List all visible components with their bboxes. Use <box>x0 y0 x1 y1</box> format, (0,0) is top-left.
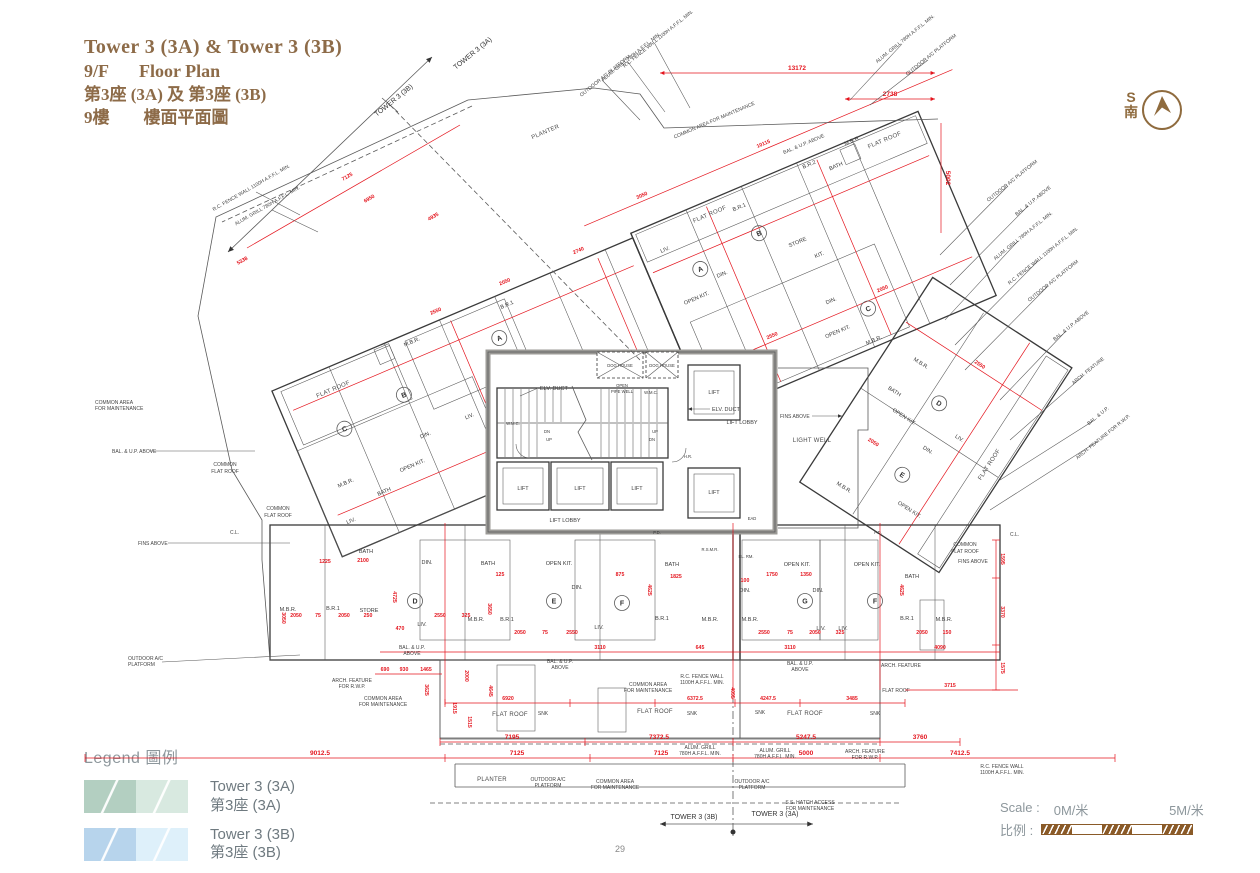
dim-label: 2050 <box>290 613 302 619</box>
dim-label: 7372.5 <box>649 734 669 741</box>
dim-label: 125 <box>496 572 505 578</box>
lift-label: LIFT <box>708 490 720 496</box>
core-label: OPEN <box>616 383 628 388</box>
room-label: OPEN KIT. <box>399 458 426 474</box>
annotation-label: FOR R.W.P. <box>339 684 366 690</box>
unit-circle: E <box>547 594 562 609</box>
room-label: BATH <box>905 574 919 580</box>
room-label: OPEN KIT. <box>546 561 573 567</box>
dim-label: 645 <box>696 645 705 651</box>
stair-direction: DN <box>649 437 655 442</box>
dim-label: 3760 <box>913 734 928 741</box>
dim-label: 3050 <box>280 612 286 624</box>
annotation-label: SNK <box>755 710 766 716</box>
dim-label: 75 <box>787 630 793 636</box>
dim-label: 2050 <box>916 630 928 636</box>
dim-label: 2050 <box>499 277 512 287</box>
dim-label: 2000 <box>463 670 469 682</box>
unit-circle: C <box>335 419 355 439</box>
dim-label: 3110 <box>784 645 795 651</box>
svg-text:DOG HOUSE: DOG HOUSE <box>649 363 675 368</box>
room-label: LIV. <box>660 245 671 254</box>
room-label: OPEN KIT. <box>854 562 881 568</box>
floor-plan: C B A A B C FLAT ROOF M.B.R. B.R.1 M.B.R… <box>0 0 1260 855</box>
room-label: M.B.R. <box>835 481 853 495</box>
dim-label: 3370 <box>999 606 1005 618</box>
annotation-label: ABOVE <box>791 667 809 673</box>
dim-label: 3110 <box>594 645 605 651</box>
annotation-label: 780H A.F.F.L. MIN. <box>679 751 721 757</box>
room-label: BATH <box>886 386 901 399</box>
area-label: FLAT ROOF <box>787 711 823 717</box>
annotation-label: PLATFORM <box>128 662 155 668</box>
tower-split-label-3a: TOWER 3 (3A) <box>453 36 494 71</box>
dim-label: 2100 <box>357 558 369 564</box>
annotation-label: PLATFORM <box>739 785 766 791</box>
dim-label: 5002 <box>944 171 951 186</box>
room-label: B.R.1 <box>500 617 514 623</box>
unit-circle: A <box>489 328 509 348</box>
area-label: FLAT ROOF <box>978 448 1003 481</box>
room-label: LIV. <box>417 622 427 628</box>
dim-label: 3485 <box>846 696 858 702</box>
dim-label: 6920 <box>502 696 514 702</box>
unit-letter: F <box>873 599 878 606</box>
room-label: LIV. <box>464 412 475 421</box>
dim-label: 4625 <box>898 584 904 596</box>
core-label: H.R. <box>684 454 692 459</box>
dim-label: 690 <box>381 667 390 673</box>
annotation-label: 780H A.F.F.L. MIN. <box>754 754 796 760</box>
dim-label: 9012.5 <box>310 750 330 757</box>
room-label: M.B.R. <box>742 617 759 623</box>
room-label: B.R.2 <box>802 160 817 171</box>
dim-label: 1515 <box>466 716 472 728</box>
dim-label: 2738 <box>883 91 898 98</box>
annotation-label: R.C. FENCE WALL 1100H A.F.F.L. MIN. <box>622 9 695 69</box>
dim-label: 7125 <box>510 750 525 757</box>
room-label: B.R.1 <box>326 606 340 612</box>
dim-label: 5338 <box>236 256 249 267</box>
dim-label: 7195 <box>505 734 520 741</box>
room-label: DIN. <box>422 560 433 566</box>
area-label: FLAT ROOF <box>211 469 239 475</box>
room-label: STORE <box>788 236 808 249</box>
dim-label: 2550 <box>973 359 986 370</box>
lift-label: LIFT <box>631 486 643 492</box>
unit-letter: A <box>697 266 704 274</box>
annotation-label: FINS ABOVE <box>780 414 810 420</box>
annotation-label: FOR MAINTENANCE <box>591 785 640 791</box>
tower-split-label-3b: TOWER 3 (3B) <box>374 83 415 118</box>
dim-label: 1825 <box>670 574 682 580</box>
dim-label: 5247.5 <box>796 734 816 741</box>
room-label: DIN. <box>572 585 583 591</box>
room-label: OPEN KIT. <box>825 324 852 340</box>
room-label: B.R.1 <box>655 616 669 622</box>
area-label: FLAT ROOF <box>492 712 528 718</box>
area-label: FLAT ROOF <box>316 380 351 400</box>
dim-label: 7125 <box>341 172 354 183</box>
room-label: M.B.R. <box>936 617 953 623</box>
tower-split-label-3a: TOWER 3 (3A) <box>752 811 799 818</box>
annotation-label: FOR MAINTENANCE <box>359 702 408 708</box>
annotation-label: SNK <box>870 711 881 717</box>
unit-circle: D <box>929 393 950 414</box>
dim-label: 1575 <box>999 662 1005 674</box>
annotation-label: FOR MAINTENANCE <box>786 806 835 812</box>
dim-label: 875 <box>616 572 625 578</box>
core-label: R.S.M.R. <box>702 547 719 552</box>
dim-label: 6950 <box>363 194 376 205</box>
dim-label: 13172 <box>788 65 806 72</box>
room-label: DIN. <box>921 445 934 456</box>
lift-label: LIFT <box>708 390 720 396</box>
core-label: EAD <box>748 516 757 521</box>
room-label: OPEN KIT. <box>683 291 710 307</box>
dim-label: 2550 <box>758 630 770 636</box>
area-label: COMMON <box>213 462 237 468</box>
room-label: M.B.R. <box>912 357 930 371</box>
area-label: FLAT ROOF <box>637 709 673 715</box>
room-label: DIN. <box>825 296 838 306</box>
dim-label: 150 <box>943 630 952 636</box>
unit-circle: G <box>798 594 813 609</box>
core-label: ELV. DUCT <box>540 386 568 392</box>
lift-label: LIFT <box>517 486 529 492</box>
room-label: LIV. <box>953 434 964 444</box>
room-label: M.B.R. <box>337 477 355 489</box>
area-label: LIGHT WELL <box>793 438 832 444</box>
stair-direction: DN <box>544 429 550 434</box>
unit-letter: E <box>898 471 906 480</box>
unit-circle: F <box>615 596 630 611</box>
core-label: P.D. <box>653 530 661 535</box>
lift-label: LIFT <box>574 486 586 492</box>
dim-label: 2740 <box>572 246 585 256</box>
room-label: DIN. <box>716 270 729 280</box>
dim-label: 470 <box>396 626 405 632</box>
room-label: B.R.1 <box>732 202 747 213</box>
room-label: BATH <box>828 161 843 172</box>
dim-label: 3650 <box>486 603 492 615</box>
unit-circle: B <box>749 223 769 243</box>
room-label: OPEN KIT. <box>891 408 917 428</box>
area-label: C.L. <box>230 530 239 536</box>
unit-letter: G <box>802 599 808 606</box>
dim-label: 6372.5 <box>687 696 703 702</box>
dim-label: 4725 <box>391 591 397 603</box>
dim-label: 4625 <box>646 584 652 596</box>
dim-label: 2050 <box>867 437 880 448</box>
annotation-label: ARCH. FEATURE FOR R.W.P. <box>1075 413 1132 461</box>
annotation-label: ARCH. FEATURE <box>1071 356 1106 386</box>
dim-label: 3625 <box>423 684 429 696</box>
annotation-label: FINS ABOVE <box>138 541 168 547</box>
unit-letter: C <box>341 425 348 433</box>
room-label: BATH <box>665 562 679 568</box>
light-well: LIGHT WELL FINS ABOVE <box>778 368 868 528</box>
annotation-label: COMMON AREA FOR MAINTENANCE <box>673 101 757 141</box>
room-label: B.R.1 <box>900 616 914 622</box>
area-label: C.L. <box>1010 532 1019 538</box>
unit-letter: A <box>496 335 503 343</box>
annotation-label: R.C. FENCE WALL 1100H A.F.F.L. MIN. <box>1007 226 1080 286</box>
annotation-label: SNK <box>687 711 698 717</box>
unit-circle: E <box>892 464 913 485</box>
dim-label: 930 <box>400 667 409 673</box>
dim-label: 4095 <box>729 687 735 699</box>
dim-label: 2550 <box>434 613 446 619</box>
dog-house: DOG HOUSE <box>597 352 643 378</box>
annotation-label: 1100H A.F.F.L. MIN. <box>680 680 724 686</box>
dim-label: 75 <box>542 630 548 636</box>
room-label: M.B.R. <box>844 135 862 147</box>
dim-label: 4645 <box>487 685 493 697</box>
room-label: OPEN KIT. <box>784 562 811 568</box>
dim-label: 100 <box>741 578 750 584</box>
annotation-label: PLATFORM <box>535 783 562 789</box>
dim-label: 7125 <box>654 750 669 757</box>
annotation-label: ARCH. FEATURE <box>881 663 922 669</box>
room-label: OPEN KIT. <box>896 500 922 520</box>
core-label: P.D. <box>874 530 882 535</box>
room-label: KIT. <box>814 251 826 260</box>
dim-label: 1350 <box>800 572 812 578</box>
dim-label: 2050 <box>514 630 526 636</box>
area-label: PLANTER <box>477 777 507 783</box>
area-label: FLAT ROOF <box>882 688 910 694</box>
annotation-label: 1100H A.F.F.L. MIN. <box>980 770 1024 776</box>
dog-house: DOG HOUSE <box>646 352 678 378</box>
annotation-label: FOR R.W.P. <box>852 755 879 761</box>
core-label: W.M.C. <box>644 390 658 395</box>
dim-label: 4935 <box>427 212 440 223</box>
room-label: M.B.R. <box>702 617 719 623</box>
annotation-label: BAL. & U.P. <box>1086 406 1110 427</box>
annotation-label: FINS ABOVE <box>958 559 988 565</box>
annotation-label: R.C. FENCE WALL 1100H A.F.F.L. MIN. <box>212 163 292 212</box>
stair-direction: UP <box>546 437 552 442</box>
dim-label: 3715 <box>944 683 956 689</box>
annotation-label: SNK <box>538 711 549 717</box>
area-label: COMMON <box>266 506 290 512</box>
dim-label: 2550 <box>429 307 442 317</box>
unit-letter: B <box>756 230 763 238</box>
tower-split-label-3b: TOWER 3 (3B) <box>671 814 718 821</box>
stair-direction: UP <box>652 429 658 434</box>
core-label: LIFT LOBBY <box>549 518 580 524</box>
area-label: FLAT ROOF <box>951 549 979 555</box>
room-label: DIN. <box>813 588 824 594</box>
core-label: LIFT LOBBY <box>726 420 757 426</box>
room-label: BATH <box>377 487 392 498</box>
dim-label: 4247.5 <box>760 696 776 702</box>
dim-label: 1225 <box>319 559 331 565</box>
annotation-label: BAL. & U.P. ABOVE <box>1052 310 1091 343</box>
annotation-label: ABOVE <box>403 651 421 657</box>
area-label: FLAT ROOF <box>264 513 292 519</box>
area-label: COMMON <box>953 542 977 548</box>
unit-letter: D <box>412 599 417 606</box>
room-label: DIN. <box>740 588 751 594</box>
dim-label: 250 <box>364 613 373 619</box>
room-label: B.R.1 <box>500 300 515 311</box>
room-label: M.B.R. <box>403 336 421 348</box>
core-label: PIPE WELL <box>611 389 634 394</box>
page-number: 29 <box>615 844 625 854</box>
unit-letter: B <box>401 391 408 399</box>
unit-letter: D <box>935 400 943 409</box>
annotation-label: BAL. & U.P. ABOVE <box>112 449 157 455</box>
unit-circle: B <box>394 385 414 405</box>
dim-label: 7412.5 <box>950 750 970 757</box>
dim-label: 75 <box>315 613 321 619</box>
unit-letter: E <box>552 599 557 606</box>
annotation-label: FOR MAINTENANCE <box>624 688 673 694</box>
dim-label: 1595 <box>999 553 1005 565</box>
dim-label: 2550 <box>566 630 578 636</box>
core-label: ELV. DUCT <box>712 407 740 413</box>
annotation-label: ABOVE <box>551 665 569 671</box>
core-label: EL. RM. <box>738 554 753 559</box>
annotation-label: FOR MAINTENANCE <box>95 406 144 412</box>
dim-label: 325 <box>462 613 471 619</box>
dim-label: 5000 <box>799 750 814 757</box>
room-label: DIN. <box>419 430 432 440</box>
annotation-label: OUTDOOR A/C PLATFORM <box>986 159 1039 203</box>
dim-label: 1750 <box>766 572 778 578</box>
dim-label: 2050 <box>338 613 350 619</box>
area-label: PLANTER <box>531 124 561 141</box>
dim-label: 10115 <box>756 139 771 150</box>
dim-label: 1465 <box>420 667 432 673</box>
dim-label: 1915 <box>451 702 457 714</box>
unit-circle: A <box>690 259 710 279</box>
svg-text:DOG HOUSE: DOG HOUSE <box>607 363 633 368</box>
unit-letter: F <box>620 601 625 608</box>
room-label: BATH <box>359 549 373 555</box>
dim-label: 4090 <box>934 645 946 651</box>
dim-label: 2050 <box>809 630 821 636</box>
room-label: BATH <box>481 561 495 567</box>
room-label: LIV. <box>594 625 604 631</box>
unit-letter: C <box>865 305 872 313</box>
dim-label: 325 <box>836 630 845 636</box>
core-label: W.M.C. <box>506 421 520 426</box>
